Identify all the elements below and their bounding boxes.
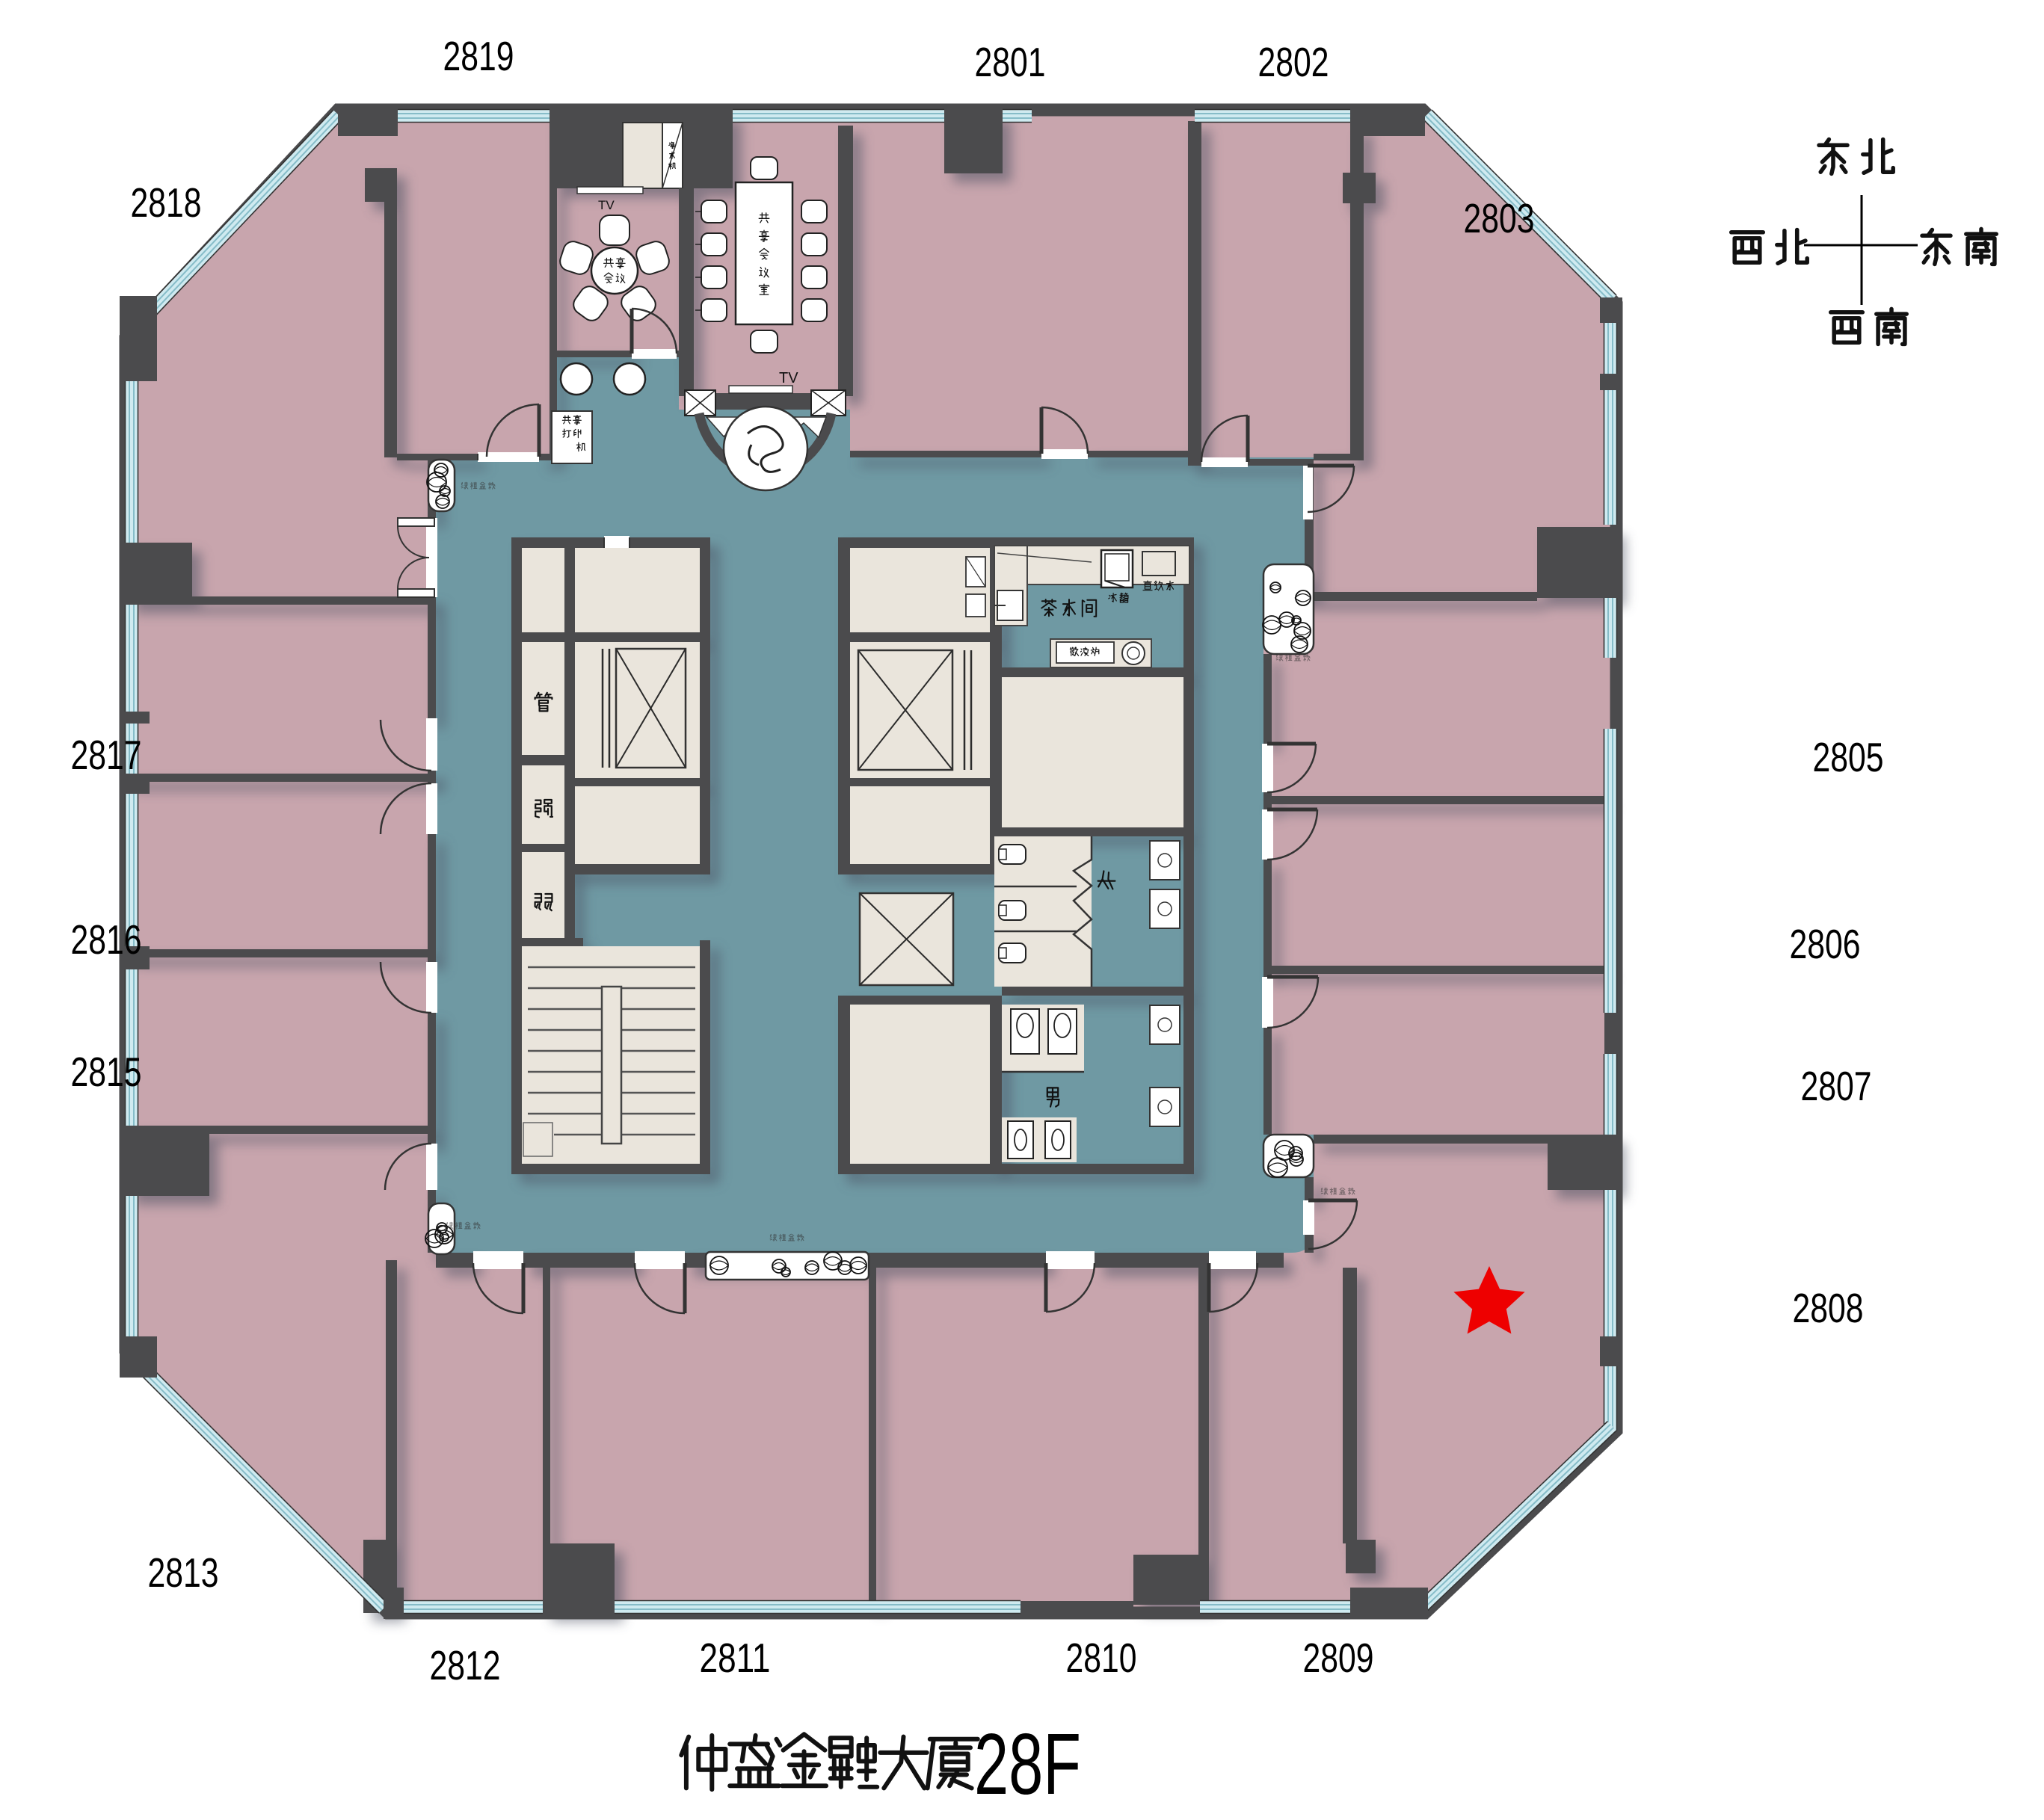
svg-text:2808: 2808	[1793, 1285, 1864, 1331]
svg-text:2801: 2801	[975, 39, 1046, 85]
svg-text:2810: 2810	[1066, 1635, 1137, 1681]
svg-text:2802: 2802	[1258, 39, 1329, 85]
svg-text:2811: 2811	[700, 1635, 771, 1681]
svg-text:2819: 2819	[443, 33, 514, 79]
svg-text:2817: 2817	[71, 732, 142, 778]
svg-text:2818: 2818	[131, 179, 202, 226]
svg-text:TV: TV	[598, 198, 615, 212]
svg-text:2812: 2812	[430, 1642, 501, 1688]
svg-text:2803: 2803	[1464, 195, 1535, 241]
svg-text:2807: 2807	[1801, 1063, 1872, 1109]
svg-text:2809: 2809	[1303, 1635, 1374, 1681]
svg-text:2816: 2816	[71, 916, 142, 963]
svg-text:2805: 2805	[1813, 734, 1884, 780]
svg-text:TV: TV	[779, 370, 798, 386]
svg-text:2806: 2806	[1790, 921, 1861, 967]
svg-text:28F: 28F	[974, 1715, 1081, 1813]
svg-text:2815: 2815	[71, 1049, 142, 1095]
svg-text:2813: 2813	[148, 1549, 219, 1596]
